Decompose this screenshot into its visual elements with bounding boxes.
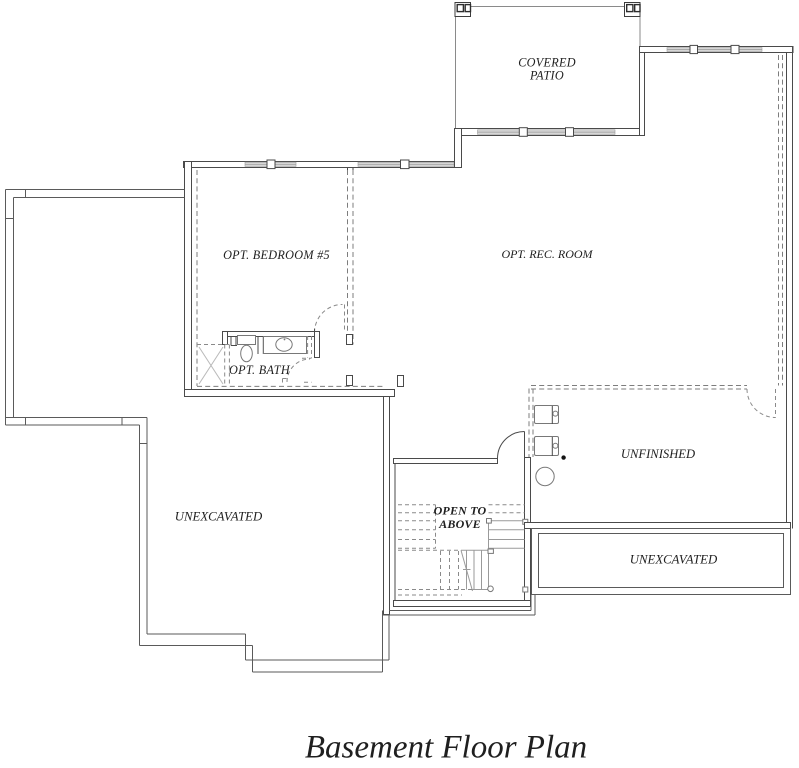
svg-text:ABOVE: ABOVE [438,517,481,531]
svg-text:OPT. REC. ROOM: OPT. REC. ROOM [501,247,593,261]
svg-text:UNEXCAVATED: UNEXCAVATED [175,510,263,524]
svg-text:UNEXCAVATED: UNEXCAVATED [630,553,718,567]
svg-text:Basement Floor Plan: Basement Floor Plan [305,730,587,766]
svg-text:UNFINISHED: UNFINISHED [621,447,695,461]
svg-text:PATIO: PATIO [529,69,564,83]
svg-text:OPT. BEDROOM #5: OPT. BEDROOM #5 [223,248,330,262]
svg-text:COVERED: COVERED [518,55,576,69]
svg-text:OPT. BATH: OPT. BATH [229,363,291,377]
svg-text:OPEN TO: OPEN TO [434,504,487,518]
